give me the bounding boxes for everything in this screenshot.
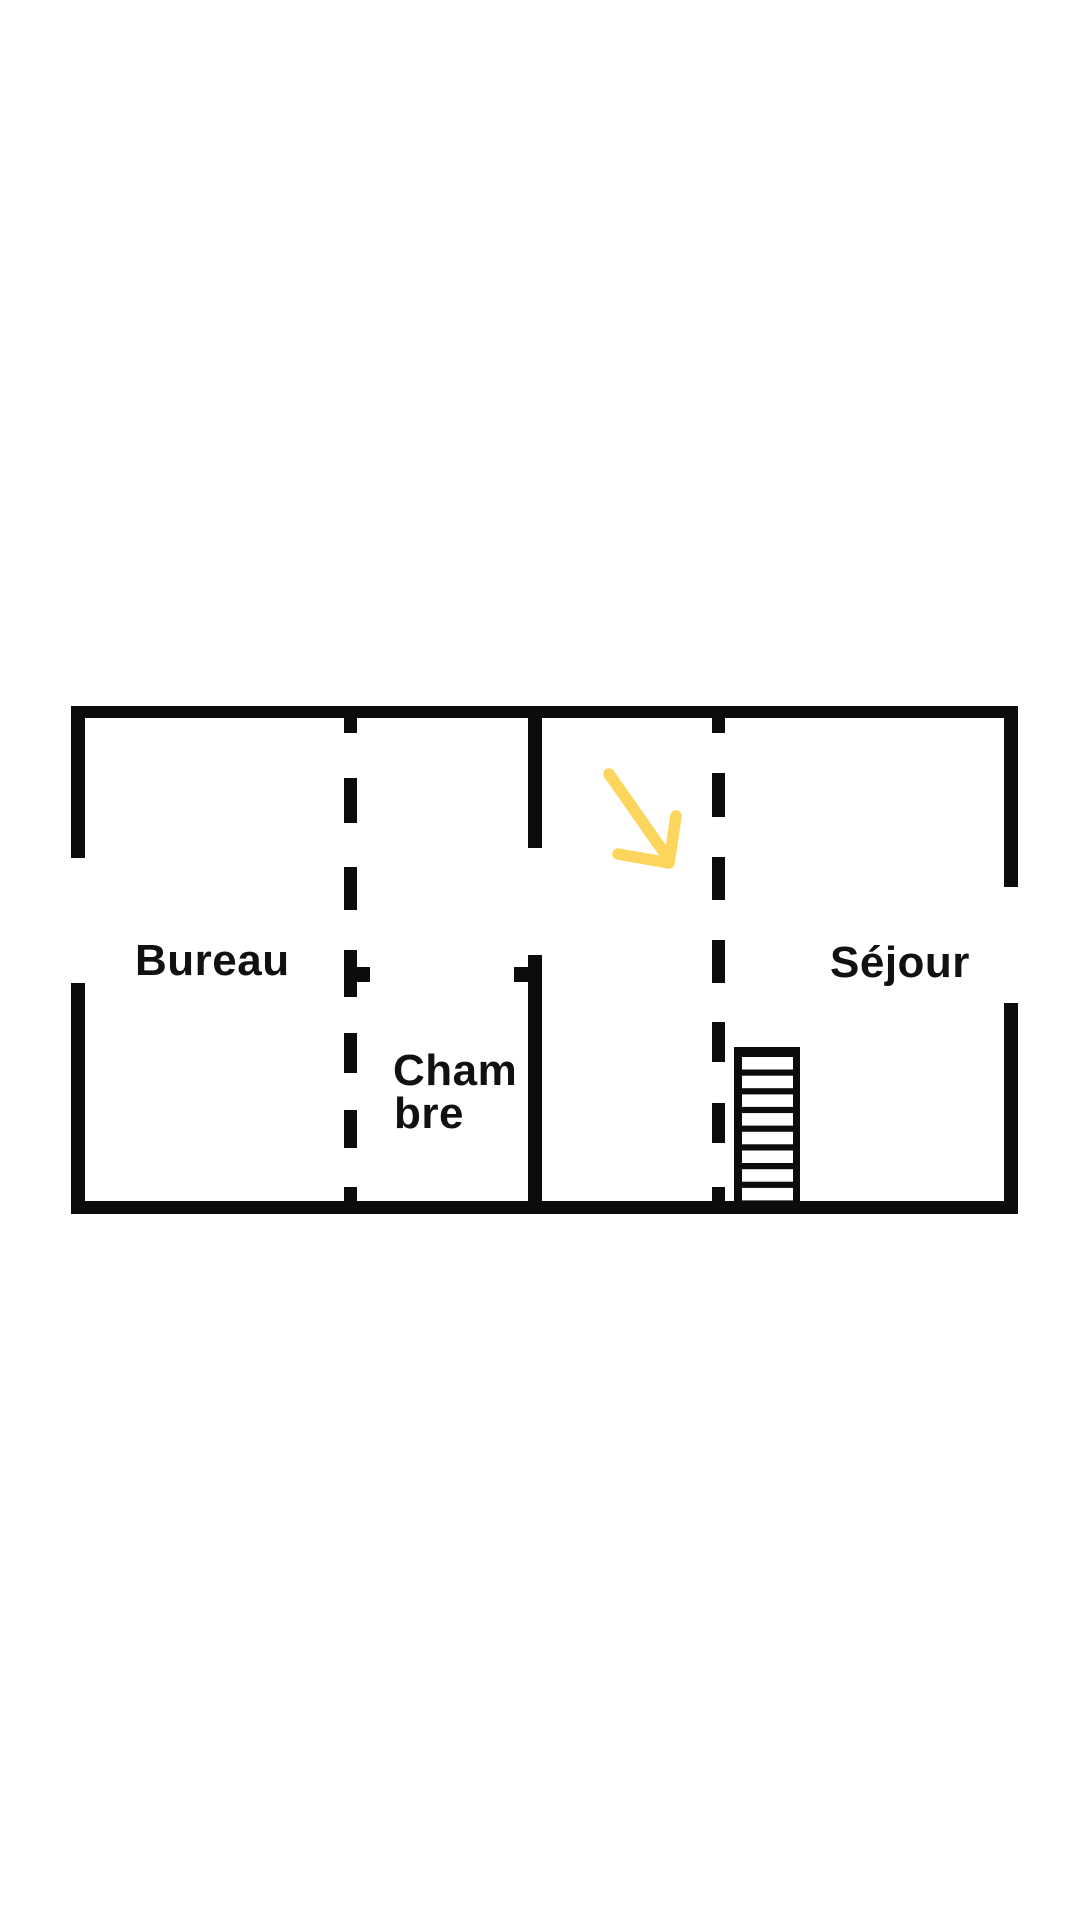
wall-outer-left-upper [71,706,85,858]
wall-interior-lower [528,955,542,1201]
dash-segment [712,940,725,983]
stair-tread [742,1113,793,1126]
stair-tread [742,1132,793,1145]
dashed-wall-bureau-chambre [344,718,370,1201]
wall-outer-left-lower [71,983,85,1214]
wall-interior-upper [528,718,542,848]
dash-segment [344,1033,357,1073]
stairs [734,1047,800,1203]
room-label-bureau: Bureau [135,936,290,985]
dashed-wall-hall-sejour [712,718,725,1201]
wall-interior-door-stub-left [514,967,528,982]
direction-arrow-icon [609,774,676,863]
dash-segment [712,1103,725,1143]
stair-tread [742,1151,793,1164]
dash-door-stub-right [357,967,370,982]
room-label-sejour: Séjour [830,938,970,987]
arrow-shaft [609,774,663,851]
wall-outer-top [71,706,1018,718]
floor-plan: Bureau Cham bre Séjour [0,0,1080,1920]
dash-segment [712,718,725,733]
room-labels: Bureau Cham bre Séjour [135,936,970,1138]
wall-outer-bottom [71,1201,1018,1214]
stair-tread [742,1076,793,1089]
dash-segment [712,857,725,900]
dash-segment [344,1187,357,1201]
dash-segment [344,1110,357,1148]
stair-tread [742,1169,793,1182]
dash-segment [712,1022,725,1062]
room-label-chambre-line2: bre [394,1089,464,1138]
stair-tread [742,1188,793,1201]
wall-outer-right-upper [1004,706,1018,887]
dash-segment [344,778,357,823]
stair-tread [742,1057,793,1070]
dash-segment [344,867,357,910]
wall-outer-right-lower [1004,1003,1018,1214]
floor-plan-canvas: Bureau Cham bre Séjour [0,0,1080,1920]
dash-segment [712,1187,725,1201]
stair-tread [742,1094,793,1107]
dash-segment [344,950,357,997]
room-label-chambre-line1: Cham [393,1046,517,1095]
dash-segment [712,773,725,817]
dash-segment [344,718,357,733]
